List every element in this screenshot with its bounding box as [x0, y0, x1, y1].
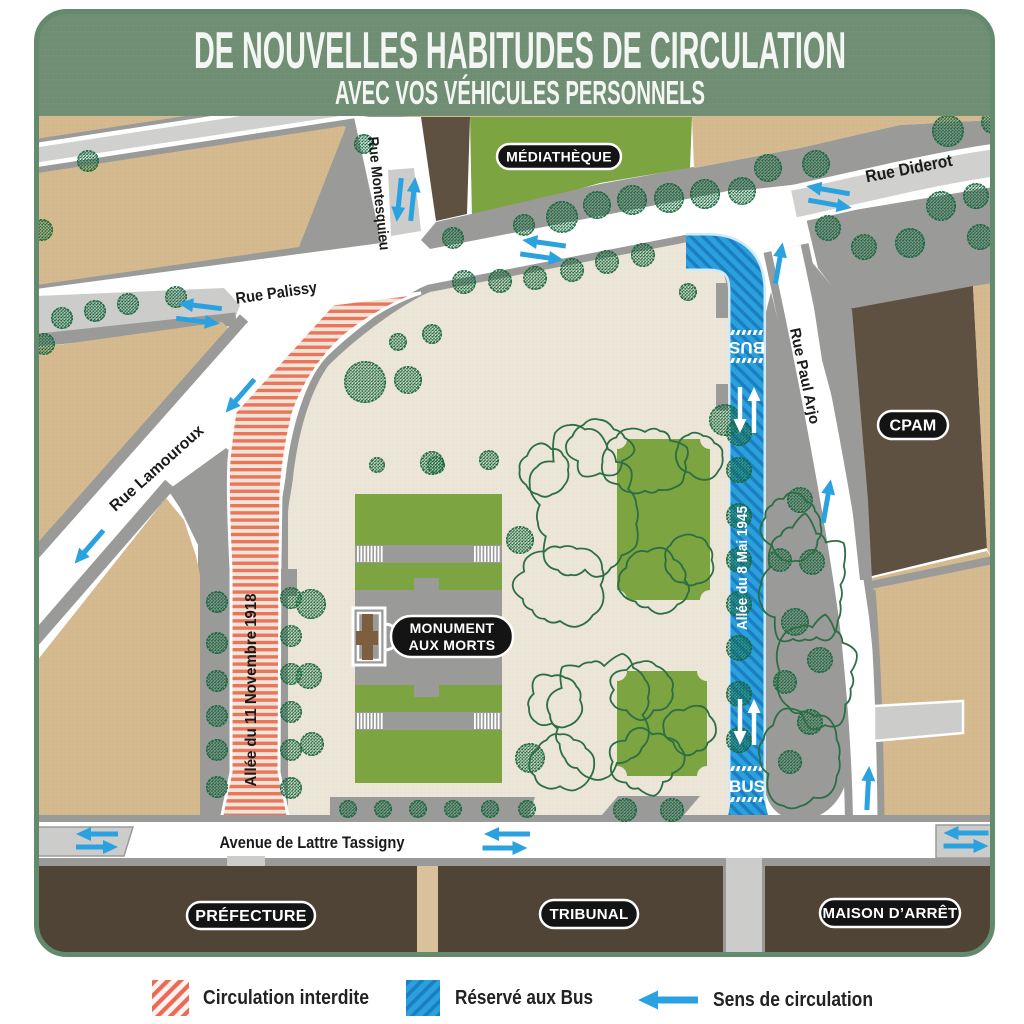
svg-text:DE NOUVELLES HABITUDES DE CIRC: DE NOUVELLES HABITUDES DE CIRCULATION: [194, 22, 846, 80]
svg-text:AVEC VOS VÉHICULES PERSONNELS: AVEC VOS VÉHICULES PERSONNELS: [335, 74, 705, 111]
svg-text:MONUMENT: MONUMENT: [410, 620, 495, 636]
svg-text:Avenue de Lattre Tassigny: Avenue de Lattre Tassigny: [220, 833, 405, 852]
svg-text:Allée du 11 Novembre 1918: Allée du 11 Novembre 1918: [243, 593, 260, 786]
svg-text:CPAM: CPAM: [889, 418, 936, 435]
svg-text:MÉDIATHÈQUE: MÉDIATHÈQUE: [506, 148, 612, 164]
svg-text:AUX MORTS: AUX MORTS: [409, 637, 496, 653]
svg-text:Circulation interdite: Circulation interdite: [203, 987, 369, 1009]
svg-text:TRIBUNAL: TRIBUNAL: [549, 906, 628, 923]
svg-text:PRÉFECTURE: PRÉFECTURE: [195, 906, 306, 925]
svg-text:Allée du 8 Mai 1945: Allée du 8 Mai 1945: [734, 506, 751, 630]
svg-text:Réservé aux Bus: Réservé aux Bus: [455, 987, 593, 1009]
svg-text:BUS: BUS: [729, 777, 765, 796]
svg-text:MAISON D’ARRÊT: MAISON D’ARRÊT: [822, 904, 957, 922]
svg-text:Sens de circulation: Sens de circulation: [713, 989, 873, 1011]
svg-text:BUS: BUS: [729, 338, 765, 357]
